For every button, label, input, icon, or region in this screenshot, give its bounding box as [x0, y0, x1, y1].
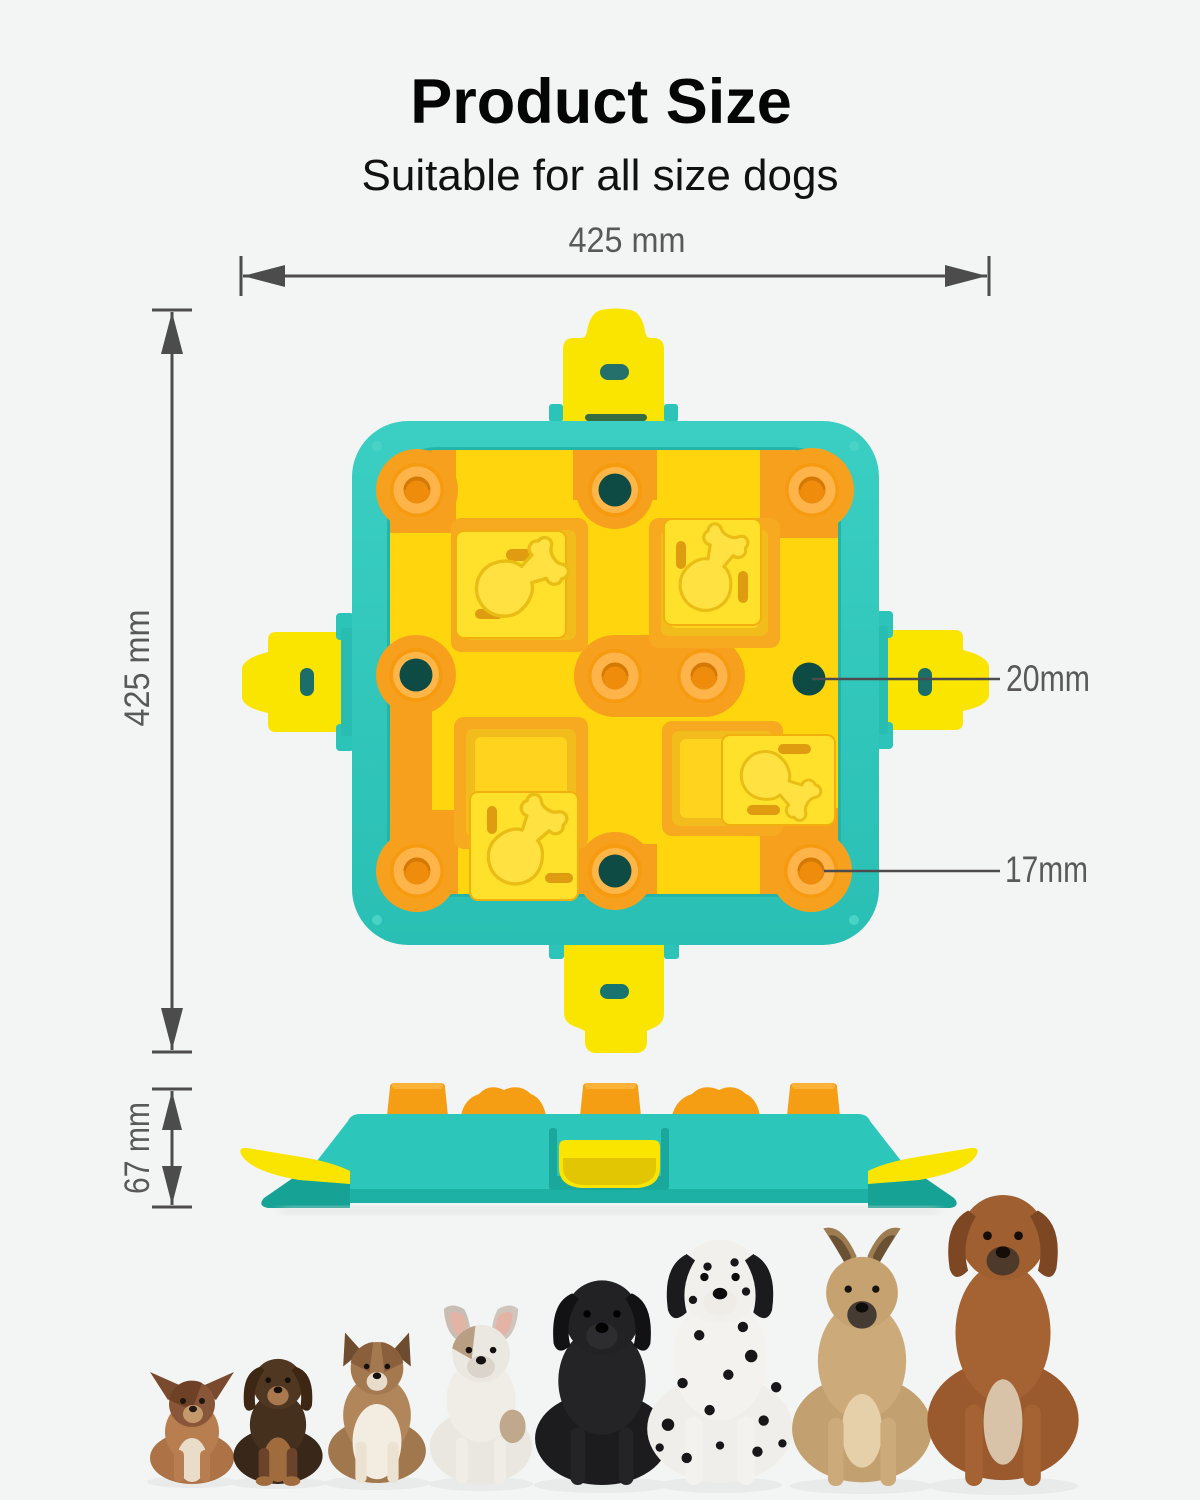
svg-text:17mm: 17mm	[1005, 849, 1088, 890]
svg-text:20mm: 20mm	[1006, 658, 1090, 699]
svg-text:425 mm: 425 mm	[118, 610, 157, 727]
svg-text:67 mm: 67 mm	[118, 1102, 157, 1194]
svg-text:Product Size: Product Size	[410, 67, 792, 137]
svg-text:Suitable for all size dogs: Suitable for all size dogs	[362, 151, 839, 200]
svg-text:425 mm: 425 mm	[569, 221, 686, 260]
